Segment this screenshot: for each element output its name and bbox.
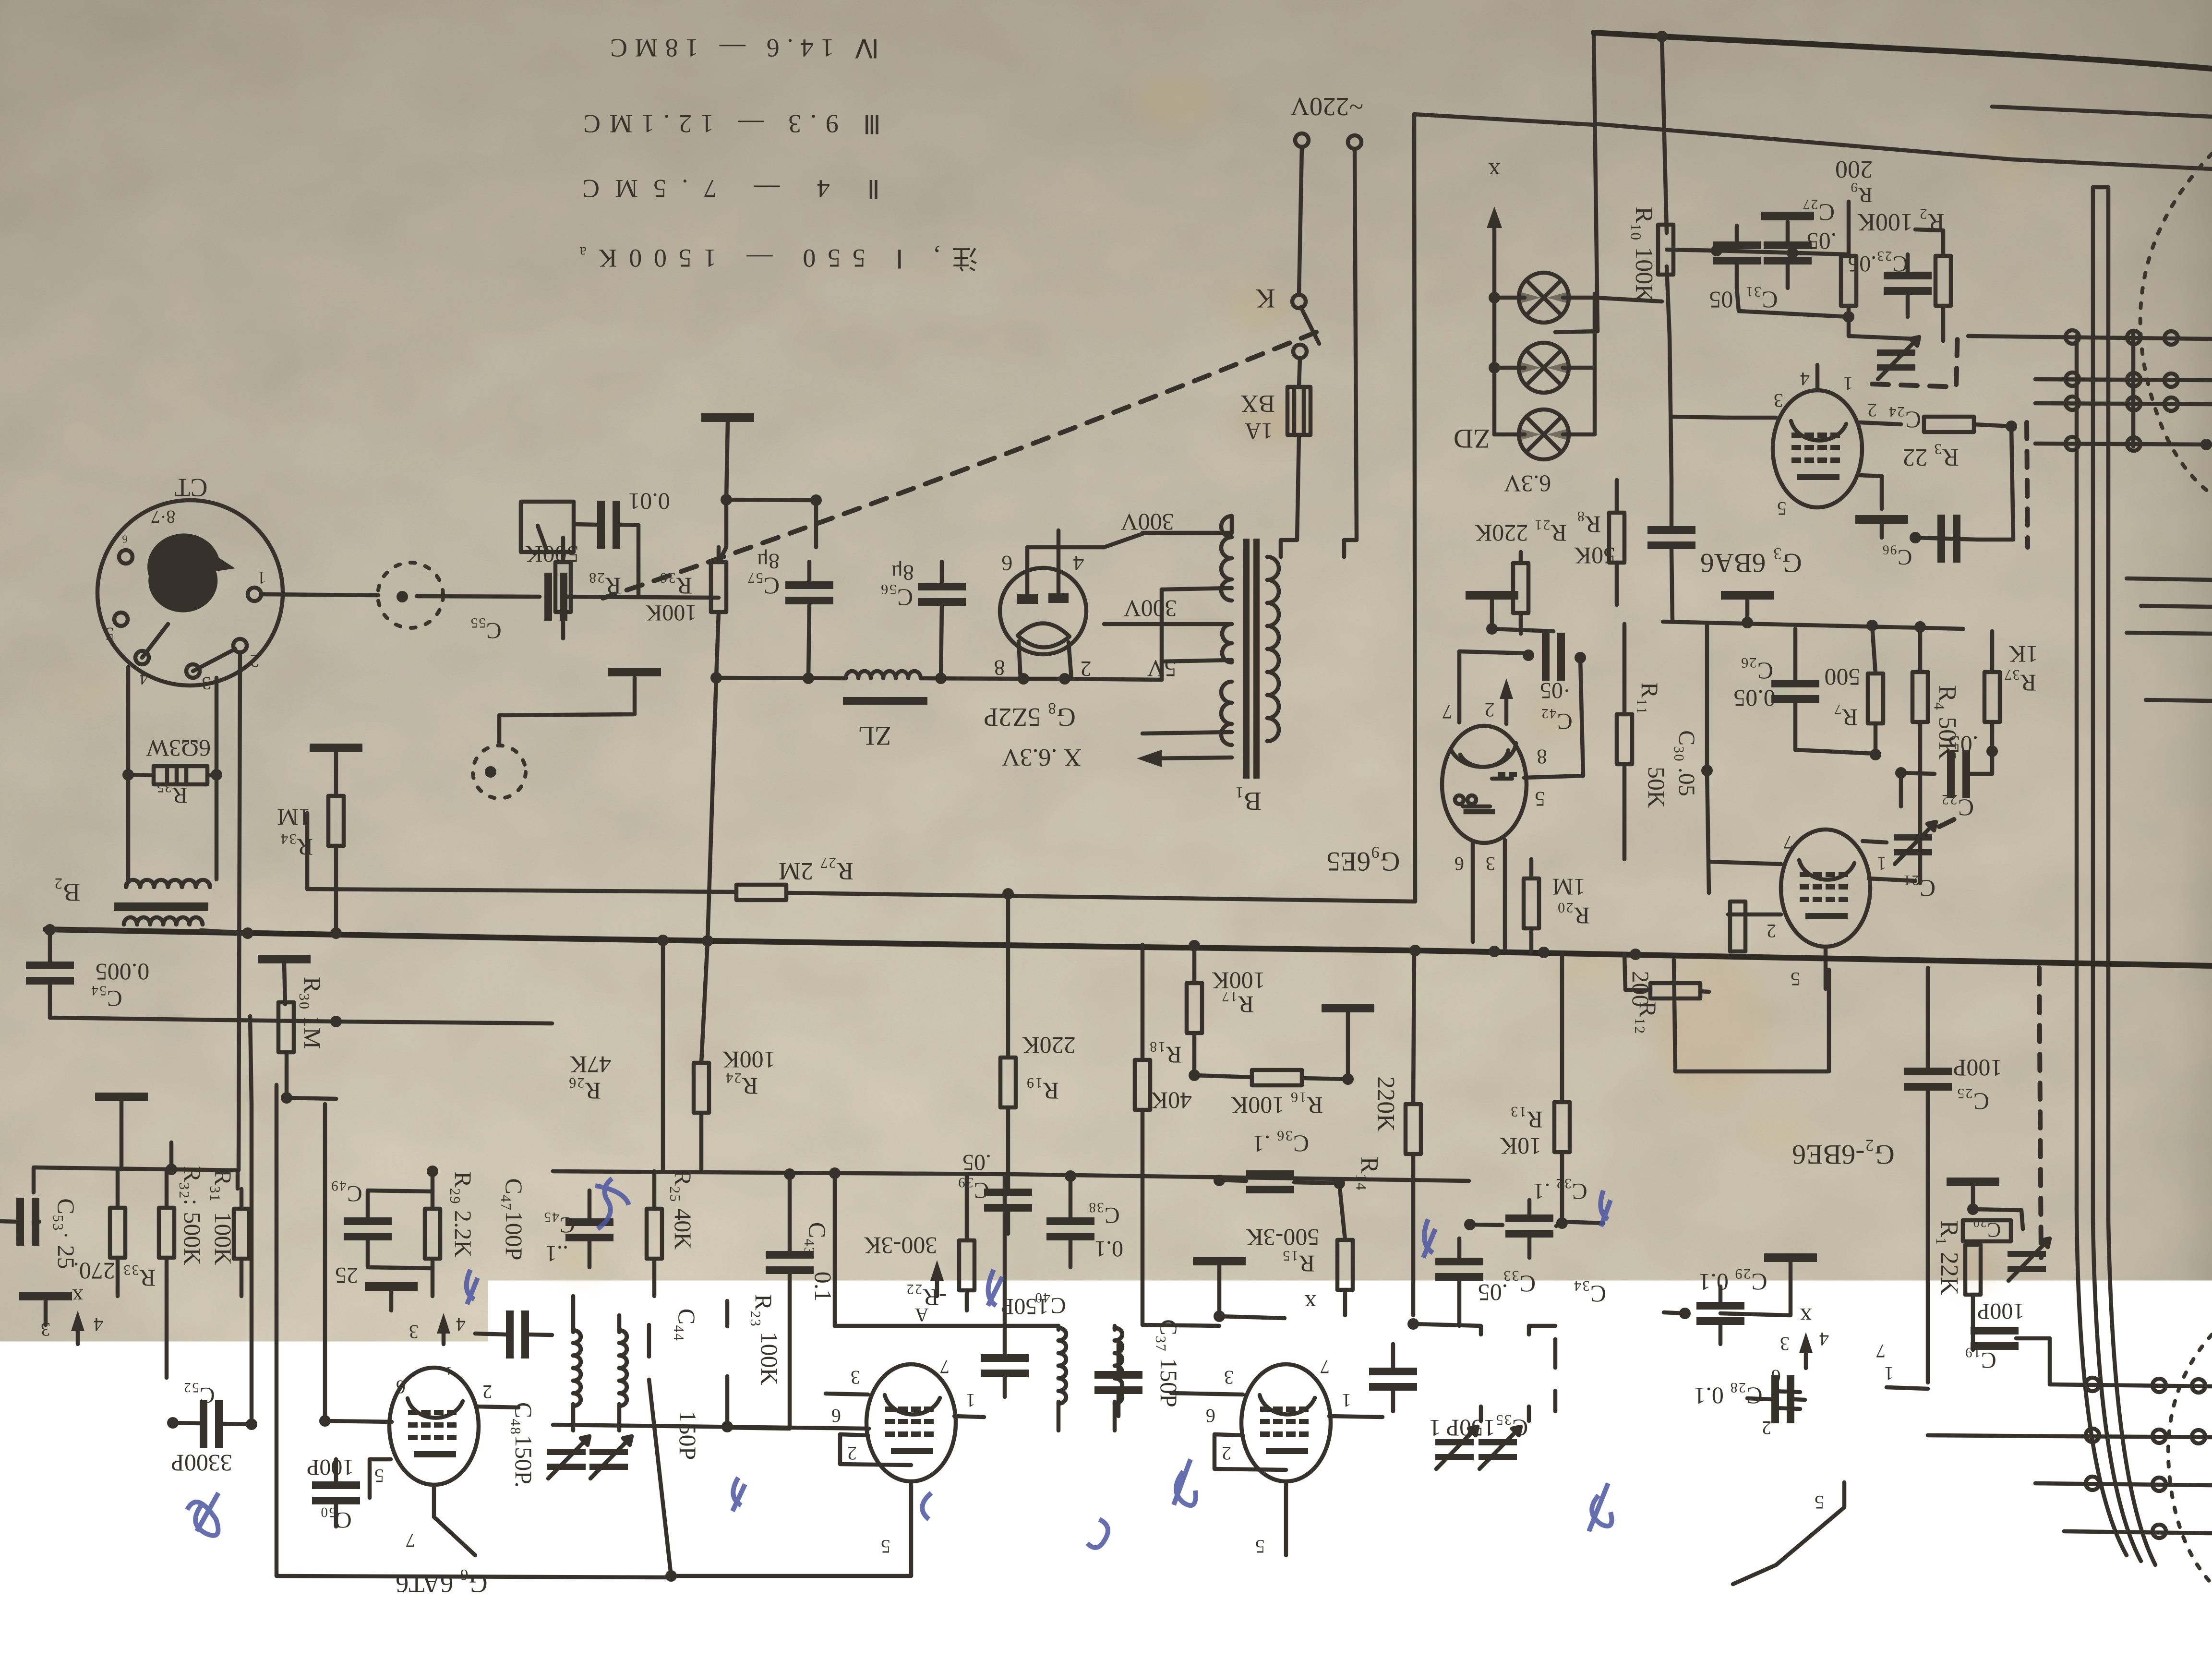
svg-text:6: 6 (1206, 1405, 1215, 1427)
svg-text:1: 1 (1843, 373, 1853, 395)
svg-text:2: 2 (1767, 920, 1776, 942)
svg-text:40K: 40K (1151, 1087, 1192, 1114)
svg-text:ZL: ZL (858, 721, 891, 751)
svg-text:C₃₉: C₃₉ (958, 1178, 989, 1203)
svg-text:R₂₇ 2M: R₂₇ 2M (779, 857, 854, 885)
svg-text:2: 2 (847, 1443, 857, 1464)
svg-text:C₄₈150P.: C₄₈150P. (510, 1402, 537, 1488)
svg-text:7: 7 (1876, 1340, 1886, 1362)
svg-text:R₂₃: R₂₃ (750, 1294, 777, 1327)
svg-text:3300P: 3300P (171, 1450, 232, 1477)
svg-text:100K: 100K (210, 1212, 237, 1265)
svg-text:5: 5 (105, 624, 114, 644)
svg-text:R₁₆ 100K: R₁₆ 100K (1231, 1092, 1323, 1119)
svg-text:C₃₀ .05: C₃₀ .05 (1674, 730, 1699, 796)
svg-text:R₂₉ 2.2K: R₂₉ 2.2K (450, 1171, 477, 1257)
svg-text:R₈: R₈ (1577, 511, 1601, 538)
svg-text:C₂₃.05: C₂₃.05 (1848, 251, 1908, 276)
svg-text:C₄₄: C₄₄ (673, 1309, 700, 1341)
svg-text:R₃₃: R₃₃ (123, 1265, 156, 1292)
svg-text:R₅ 50K: R₅ 50K (1523, 1495, 1598, 1522)
svg-text:R₃₁: R₃₁ (210, 1169, 237, 1202)
svg-text:C₂₀: C₂₀ (1973, 1218, 2001, 1241)
svg-text:8: 8 (1537, 745, 1547, 768)
svg-text:R₃₀ 1M: R₃₀ 1M (299, 977, 326, 1049)
svg-text:G₄ 6BA6: G₄ 6BA6 (1207, 1586, 1308, 1616)
svg-text:5: 5 (1777, 498, 1787, 519)
svg-text:.05: .05 (1478, 1279, 1508, 1306)
svg-text:G₃ 6BA6: G₃ 6BA6 (1700, 548, 1802, 578)
svg-text:C₃₂ .1: C₃₂ .1 (1533, 1178, 1587, 1204)
svg-text:5: 5 (1255, 1536, 1265, 1557)
svg-text:3: 3 (1224, 1367, 1234, 1388)
svg-text:5: 5 (374, 1465, 384, 1487)
svg-text:4: 4 (94, 1314, 103, 1335)
svg-text:8μ: 8μ (891, 561, 914, 585)
svg-text:100P: 100P (307, 1455, 354, 1480)
svg-text:C₃₆ .1: C₃₆ .1 (1252, 1130, 1309, 1157)
svg-text:500K: 500K (179, 1212, 206, 1265)
svg-text:6: 6 (13, 1381, 23, 1403)
svg-text:R₁₀ 100K: R₁₀ 100K (1630, 206, 1658, 302)
svg-text:CT: CT (174, 473, 207, 502)
svg-text:G₉6E5: G₉6E5 (1327, 846, 1400, 877)
svg-text:R₃ 22: R₃ 22 (1902, 444, 1959, 471)
svg-text:2: 2 (250, 650, 259, 671)
svg-text:R₃₅: R₃₅ (156, 782, 187, 808)
svg-text:5: 5 (1815, 1491, 1824, 1513)
svg-text:47K: 47K (570, 1051, 611, 1078)
svg-text:0.1: 0.1 (1094, 1236, 1123, 1262)
svg-text:500-3K: 500-3K (1246, 1224, 1320, 1251)
svg-text:200: 200 (1835, 156, 1873, 183)
svg-text:C₃₇ 150P: C₃₇ 150P (1155, 1319, 1182, 1407)
svg-text:C₂₄: C₂₄ (1888, 407, 1921, 433)
svg-text:220K: 220K (1022, 1032, 1075, 1059)
svg-text:~220V: ~220V (1290, 92, 1363, 121)
svg-text:2: 2 (115, 1425, 125, 1447)
svg-text:C₄₇100P: C₄₇100P (501, 1178, 528, 1260)
svg-text:6.3V: 6.3V (1504, 470, 1551, 497)
svg-text:G₈ 5Z2P: G₈ 5Z2P (984, 703, 1076, 732)
svg-text:3: 3 (409, 1321, 419, 1343)
svg-text:R₁₇: R₁₇ (1221, 991, 1254, 1018)
svg-text:500: 500 (1825, 664, 1861, 691)
svg-text:6: 6 (1455, 853, 1464, 875)
svg-text:3: 3 (1774, 390, 1783, 411)
svg-text:C₅₅: C₅₅ (470, 618, 501, 643)
svg-text:6Ω3W: 6Ω3W (146, 735, 211, 762)
svg-text:2: 2 (1222, 1443, 1231, 1464)
svg-text:100P: 100P (1953, 1055, 2003, 1082)
svg-text:.05: .05 (1807, 228, 1837, 255)
svg-text:G₅ 6BA6: G₅ 6BA6 (852, 1577, 953, 1607)
svg-text:1: 1 (1342, 1390, 1351, 1411)
svg-text:1M: 1M (1552, 874, 1585, 901)
svg-text:C₂₈ 0.1: C₂₈ 0.1 (1694, 1382, 1762, 1409)
svg-text:G₁ 6BA6: G₁ 6BA6 (1747, 1571, 1848, 1601)
svg-text:R₁₁: R₁₁ (1636, 682, 1663, 715)
svg-text:7: 7 (1320, 1356, 1330, 1378)
svg-text:R₂₅ 40K: R₂₅ 40K (670, 1170, 697, 1250)
svg-text:..1: ..1 (545, 1241, 568, 1266)
svg-text:8μ: 8μ (757, 549, 780, 574)
svg-text:B₁: B₁ (1235, 787, 1262, 816)
svg-text:1: 1 (121, 1387, 131, 1408)
svg-text:500K: 500K (525, 541, 578, 568)
svg-text:x: x (1305, 1290, 1317, 1317)
svg-text:2: 2 (1867, 399, 1877, 421)
svg-text:C₂₉ 0.1: C₂₉ 0.1 (1698, 1269, 1767, 1296)
svg-text:50K: 50K (1643, 767, 1670, 808)
svg-text:4: 4 (1073, 551, 1084, 576)
svg-text:C₄₀: C₄₀ (1034, 1293, 1066, 1318)
svg-text:R₃₇: R₃₇ (2004, 670, 2036, 697)
svg-text:C₃₄: C₃₄ (1574, 1281, 1606, 1308)
svg-text:C₅₄: C₅₄ (91, 986, 122, 1011)
svg-text:300V: 300V (1123, 595, 1177, 622)
svg-text:1: 1 (257, 567, 266, 588)
svg-text:A: A (914, 1304, 928, 1326)
svg-text:150P: 150P (674, 1411, 701, 1460)
svg-text:4: 4 (1800, 368, 1810, 390)
svg-text:4: 4 (1819, 1328, 1829, 1350)
svg-text:0.01: 0.01 (628, 488, 670, 515)
svg-text:2: 2 (482, 1381, 492, 1403)
svg-text:1: 1 (1877, 853, 1887, 875)
svg-text:5: 5 (1791, 968, 1800, 990)
svg-text:7: 7 (1783, 831, 1793, 853)
svg-text:BX: BX (1240, 390, 1275, 417)
svg-text:R₂₆: R₂₆ (568, 1078, 601, 1105)
svg-text:G₇ 6AQ5: G₇ 6AQ5 (30, 1567, 128, 1596)
svg-text:x: x (1489, 158, 1501, 185)
svg-text:100K: 100K (645, 600, 697, 625)
svg-text:R₂₁ 220K: R₂₁ 220K (1475, 520, 1567, 547)
svg-text:R₁₄: R₁₄ (1356, 1157, 1383, 1191)
svg-text:C₄₃: C₄₃ (804, 1222, 831, 1255)
svg-text:100K: 100K (722, 1046, 775, 1073)
svg-text:300V: 300V (1120, 509, 1174, 536)
svg-text:100P: 100P (1977, 1298, 2025, 1324)
svg-text:5: 5 (881, 1536, 890, 1557)
svg-text:0.05: 0.05 (1733, 685, 1776, 712)
svg-text:C₅₆: C₅₆ (880, 584, 913, 611)
svg-text:2: 2 (1762, 1417, 1771, 1439)
svg-text:ZD: ZD (1454, 423, 1490, 454)
svg-text:R₁₅: R₁₅ (1282, 1250, 1315, 1277)
svg-text:R₁₃: R₁₃ (1510, 1106, 1543, 1133)
svg-text:C₃₈: C₃₈ (1088, 1202, 1119, 1228)
svg-text:100K: 100K (1212, 967, 1265, 994)
svg-text:C₁₉: C₁₉ (1965, 1347, 1996, 1373)
svg-text:3: 3 (851, 1367, 860, 1388)
svg-text:C₂₅: C₂₅ (1957, 1088, 1989, 1115)
svg-text:R₁₉: R₁₉ (1026, 1078, 1059, 1105)
svg-text:R₁ 22K: R₁ 22K (1935, 1220, 1963, 1295)
svg-text:1A: 1A (1244, 418, 1273, 444)
svg-text:C₄₅: C₄₅ (543, 1212, 575, 1238)
svg-text:R₂₄: R₂₄ (725, 1073, 758, 1100)
svg-text:G₂-6BE6: G₂-6BE6 (1792, 1139, 1895, 1170)
svg-text:x: x (1800, 1303, 1812, 1330)
svg-text:2: 2 (1484, 698, 1495, 721)
svg-text:X .6.3V: X .6.3V (1002, 744, 1082, 771)
svg-text:C₂₆: C₂₆ (1741, 658, 1773, 685)
svg-text:C₄₂: C₄₂ (1541, 709, 1572, 734)
svg-text:6: 6 (1002, 551, 1013, 576)
svg-text:1: 1 (1884, 1363, 1894, 1384)
svg-text:200: 200 (1627, 971, 1654, 1007)
svg-text:5: 5 (86, 1503, 96, 1525)
svg-text:R₇: R₇ (1834, 704, 1858, 731)
svg-text:3: 3 (202, 673, 211, 693)
svg-text:10K: 10K (1500, 1133, 1541, 1160)
svg-text:⁶: ⁶ (121, 527, 128, 547)
svg-text:0.005: 0.005 (96, 959, 150, 986)
svg-text:R₁₈: R₁₈ (1149, 1042, 1182, 1069)
svg-text:50K: 50K (1574, 542, 1615, 569)
svg-text:B₂: B₂ (54, 878, 81, 907)
svg-text:R₂₀: R₂₀ (1557, 902, 1590, 929)
svg-text:C₂₇: C₂₇ (1802, 199, 1835, 226)
svg-text:G₆ 6AT6: G₆ 6AT6 (396, 1569, 487, 1598)
svg-text:C₅₀: C₅₀ (320, 1507, 351, 1533)
svg-text:5: 5 (1535, 787, 1545, 810)
svg-text:C₅₂: C₅₂ (183, 1382, 215, 1408)
svg-text:6: 6 (396, 1376, 406, 1398)
svg-text:25: 25 (335, 1262, 358, 1288)
svg-text:1: 1 (966, 1390, 975, 1411)
svg-text:7: 7 (1442, 700, 1453, 722)
svg-text:3: 3 (1486, 853, 1495, 875)
svg-text:R₃₄: R₃₄ (280, 834, 313, 861)
svg-text:K: K (1255, 283, 1275, 313)
svg-text:4: 4 (140, 668, 149, 688)
svg-text:7: 7 (406, 1530, 415, 1551)
svg-text:1M: 1M (277, 804, 310, 831)
svg-text:₁: ₁ (445, 1367, 452, 1388)
svg-text:6: 6 (831, 1405, 841, 1427)
svg-text:1K: 1K (2008, 641, 2038, 668)
svg-text:R₃₂:: R₃₂: (179, 1166, 206, 1205)
svg-text:8: 8 (994, 656, 1005, 680)
svg-text:300-3K: 300-3K (864, 1232, 938, 1259)
svg-text:·05: ·05 (1540, 678, 1571, 703)
svg-text:R₉: R₉ (1851, 183, 1873, 207)
svg-text:4: 4 (456, 1314, 466, 1335)
svg-text:0.1: 0.1 (810, 1272, 837, 1302)
svg-text:.05: .05 (1948, 731, 1979, 758)
svg-text:C₄₉: C₄₉ (331, 1181, 362, 1206)
svg-text:.05: .05 (962, 1150, 991, 1175)
svg-text:220K: 220K (1372, 1076, 1399, 1132)
svg-text:C₅₇: C₅₇ (747, 573, 780, 600)
svg-text:3: 3 (1780, 1333, 1790, 1355)
svg-text:C₂₂: C₂₂ (1941, 794, 1974, 821)
svg-text:7: 7 (940, 1356, 950, 1378)
svg-text:100K: 100K (756, 1332, 783, 1385)
svg-text:C₉₆: C₉₆ (1882, 545, 1912, 570)
svg-text:x: x (72, 1285, 84, 1309)
svg-text:8·7: 8·7 (151, 506, 176, 527)
svg-text:270.: 270. (73, 1258, 115, 1285)
